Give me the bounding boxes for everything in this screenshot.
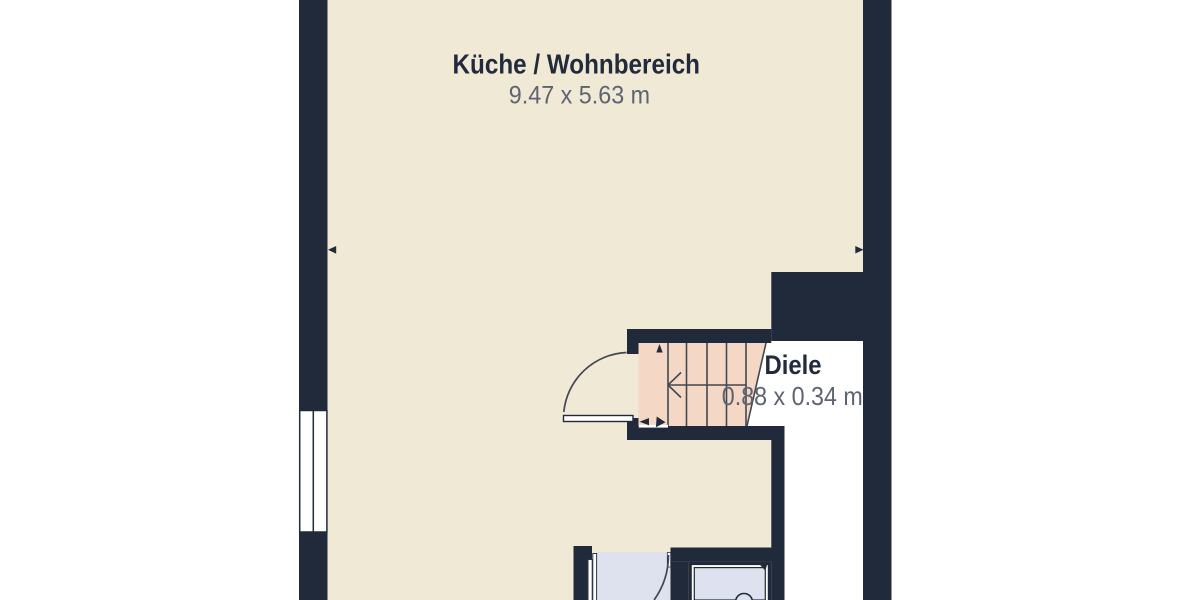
svg-text:0.88 x 0.34 m: 0.88 x 0.34 m	[722, 381, 863, 411]
svg-text:9.47 x 5.63 m: 9.47 x 5.63 m	[509, 82, 650, 110]
svg-text:Diele: Diele	[765, 350, 822, 380]
svg-text:Küche / Wohnbereich: Küche / Wohnbereich	[453, 49, 701, 80]
